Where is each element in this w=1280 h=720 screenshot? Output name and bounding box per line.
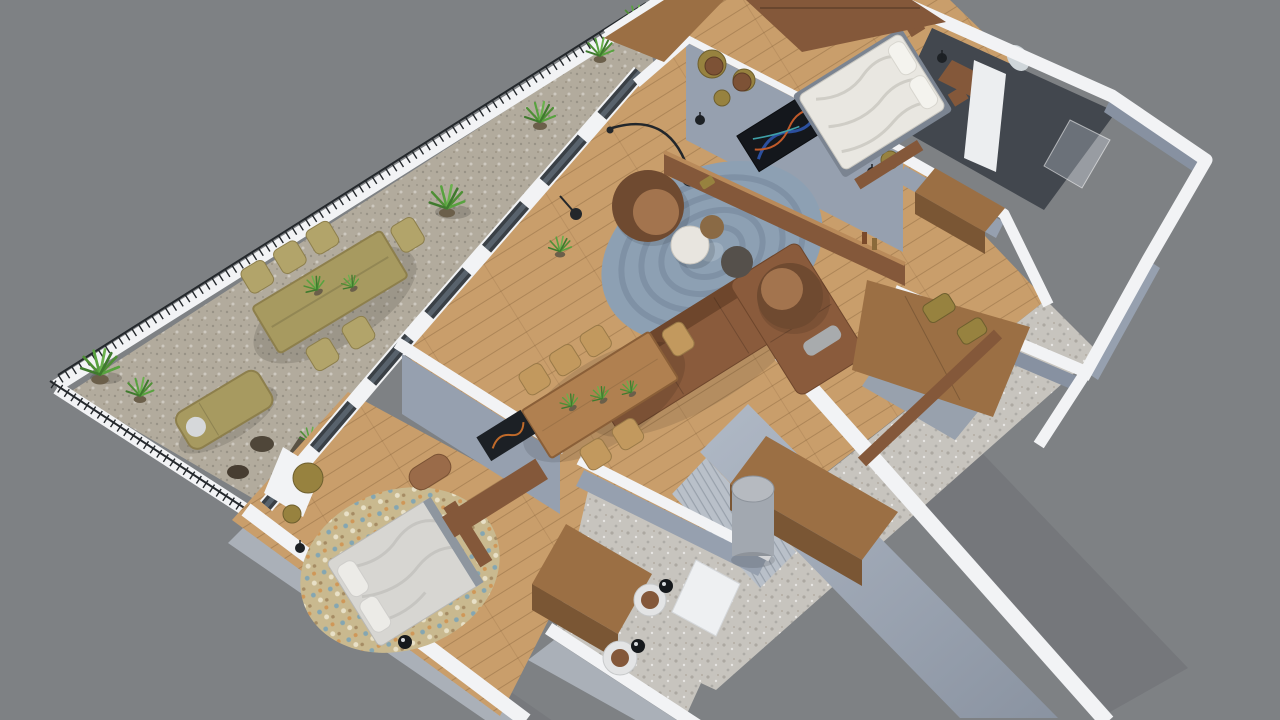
column (731, 476, 775, 568)
terrace-side-table (250, 436, 274, 452)
floorplan-3d-render (0, 0, 1280, 720)
bed2-ceiling-lamp (398, 635, 412, 649)
terrace-fire-bowl (227, 465, 249, 479)
render-viewport (0, 0, 1280, 720)
